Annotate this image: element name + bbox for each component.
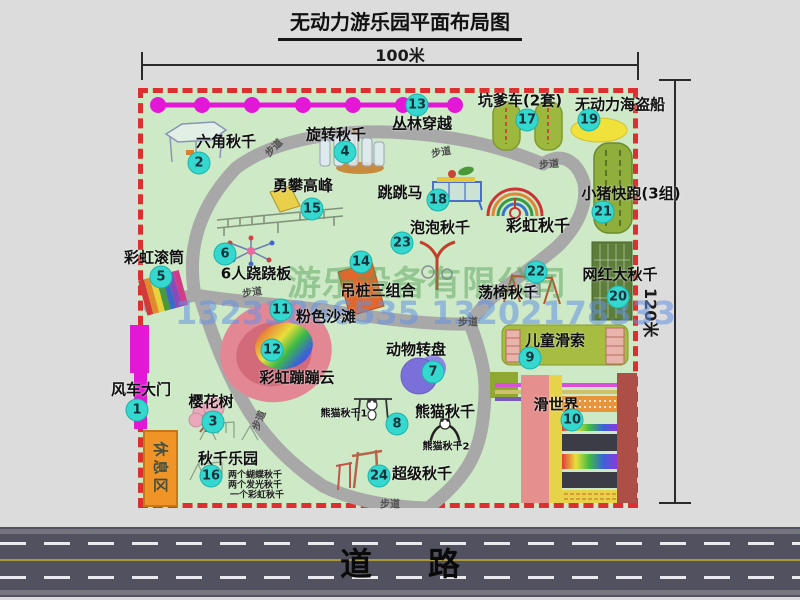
map-marker-7[interactable]: 7 bbox=[422, 361, 445, 384]
label-1: 风车大门 bbox=[111, 379, 171, 400]
watermark-phone: 13233866535 13202178333 bbox=[175, 294, 676, 332]
label-20: 网红大秋千 bbox=[582, 264, 657, 285]
label-12: 彩虹蹦蹦云 bbox=[259, 367, 334, 388]
park-layout-page: 无动力游乐园平面布局图 100米 120米 bbox=[0, 0, 800, 600]
label-13: 丛林穿越 bbox=[392, 113, 452, 134]
page-title: 无动力游乐园平面布局图 bbox=[278, 6, 522, 41]
map-marker-6[interactable]: 6 bbox=[214, 243, 237, 266]
label-4: 旋转秋千 bbox=[306, 124, 366, 145]
jungle-line-dot bbox=[194, 97, 210, 113]
label-7: 动物转盘 bbox=[386, 339, 446, 360]
label-5: 彩虹滚筒 bbox=[124, 247, 184, 268]
label-22: 荡椅秋千 bbox=[478, 282, 538, 303]
map-marker-18[interactable]: 18 bbox=[427, 189, 450, 212]
jungle-line-dot bbox=[295, 97, 311, 113]
map-marker-20[interactable]: 20 bbox=[607, 286, 630, 309]
label-3: 樱花树 bbox=[188, 391, 233, 412]
label-11: 粉色沙滩 bbox=[296, 306, 356, 327]
label-2: 六角秋千 bbox=[196, 131, 256, 152]
map-marker-21[interactable]: 21 bbox=[592, 201, 615, 224]
dimension-width-label: 100米 bbox=[358, 42, 442, 66]
map-marker-15[interactable]: 15 bbox=[301, 198, 324, 221]
label-8: 熊猫秋千 bbox=[415, 401, 475, 422]
map-marker-4[interactable]: 4 bbox=[334, 141, 357, 164]
map-marker-9[interactable]: 9 bbox=[519, 347, 542, 370]
extra-label-2: 熊猫秋千2 bbox=[423, 438, 470, 453]
map-marker-14[interactable]: 14 bbox=[350, 251, 373, 274]
slide-world-icon bbox=[490, 372, 637, 503]
map-marker-13[interactable]: 13 bbox=[406, 94, 429, 117]
map-marker-10[interactable]: 10 bbox=[561, 409, 584, 432]
label-18: 跳跳马 bbox=[377, 182, 422, 203]
jungle-line-dot bbox=[150, 97, 166, 113]
extra-label-1: 熊猫秋千1 bbox=[321, 405, 368, 420]
map-marker-24[interactable]: 24 bbox=[368, 465, 391, 488]
map-marker-19[interactable]: 19 bbox=[578, 109, 601, 132]
map-marker-11[interactable]: 11 bbox=[270, 299, 293, 322]
map-marker-22[interactable]: 22 bbox=[525, 261, 548, 284]
map-marker-12[interactable]: 12 bbox=[261, 339, 284, 362]
label-21: 小猪快跑(3组) bbox=[581, 183, 680, 204]
extra-label-0: 彩虹秋千 bbox=[506, 212, 570, 236]
road-band: 道路 bbox=[0, 527, 800, 597]
map-marker-17[interactable]: 17 bbox=[516, 109, 539, 132]
label-24: 超级秋千 bbox=[392, 463, 452, 484]
windmill-gate-top bbox=[130, 325, 149, 373]
map-marker-3[interactable]: 3 bbox=[202, 411, 225, 434]
jungle-line-dot bbox=[244, 97, 260, 113]
map-marker-16[interactable]: 16 bbox=[200, 465, 223, 488]
map-marker-1[interactable]: 1 bbox=[126, 399, 149, 422]
label-14: 吊桩三组合 bbox=[340, 280, 415, 301]
road-label-wrap: 道路 bbox=[0, 527, 800, 597]
rest-area-label: 休息区 bbox=[150, 441, 171, 495]
label-23: 泡泡秋千 bbox=[410, 217, 470, 238]
jungle-line-dot bbox=[345, 97, 361, 113]
label-17: 坑爹车(2套) bbox=[478, 90, 562, 111]
map-marker-8[interactable]: 8 bbox=[386, 413, 409, 436]
map-marker-5[interactable]: 5 bbox=[150, 266, 173, 289]
label-15: 勇攀高峰 bbox=[273, 175, 333, 196]
map-marker-2[interactable]: 2 bbox=[188, 152, 211, 175]
rest-area-box: 休息区 bbox=[143, 430, 178, 507]
map-marker-23[interactable]: 23 bbox=[391, 232, 414, 255]
jungle-line-dot bbox=[447, 97, 463, 113]
road-label: 道路 bbox=[340, 539, 516, 585]
label-6: 6人跷跷板 bbox=[221, 263, 291, 284]
